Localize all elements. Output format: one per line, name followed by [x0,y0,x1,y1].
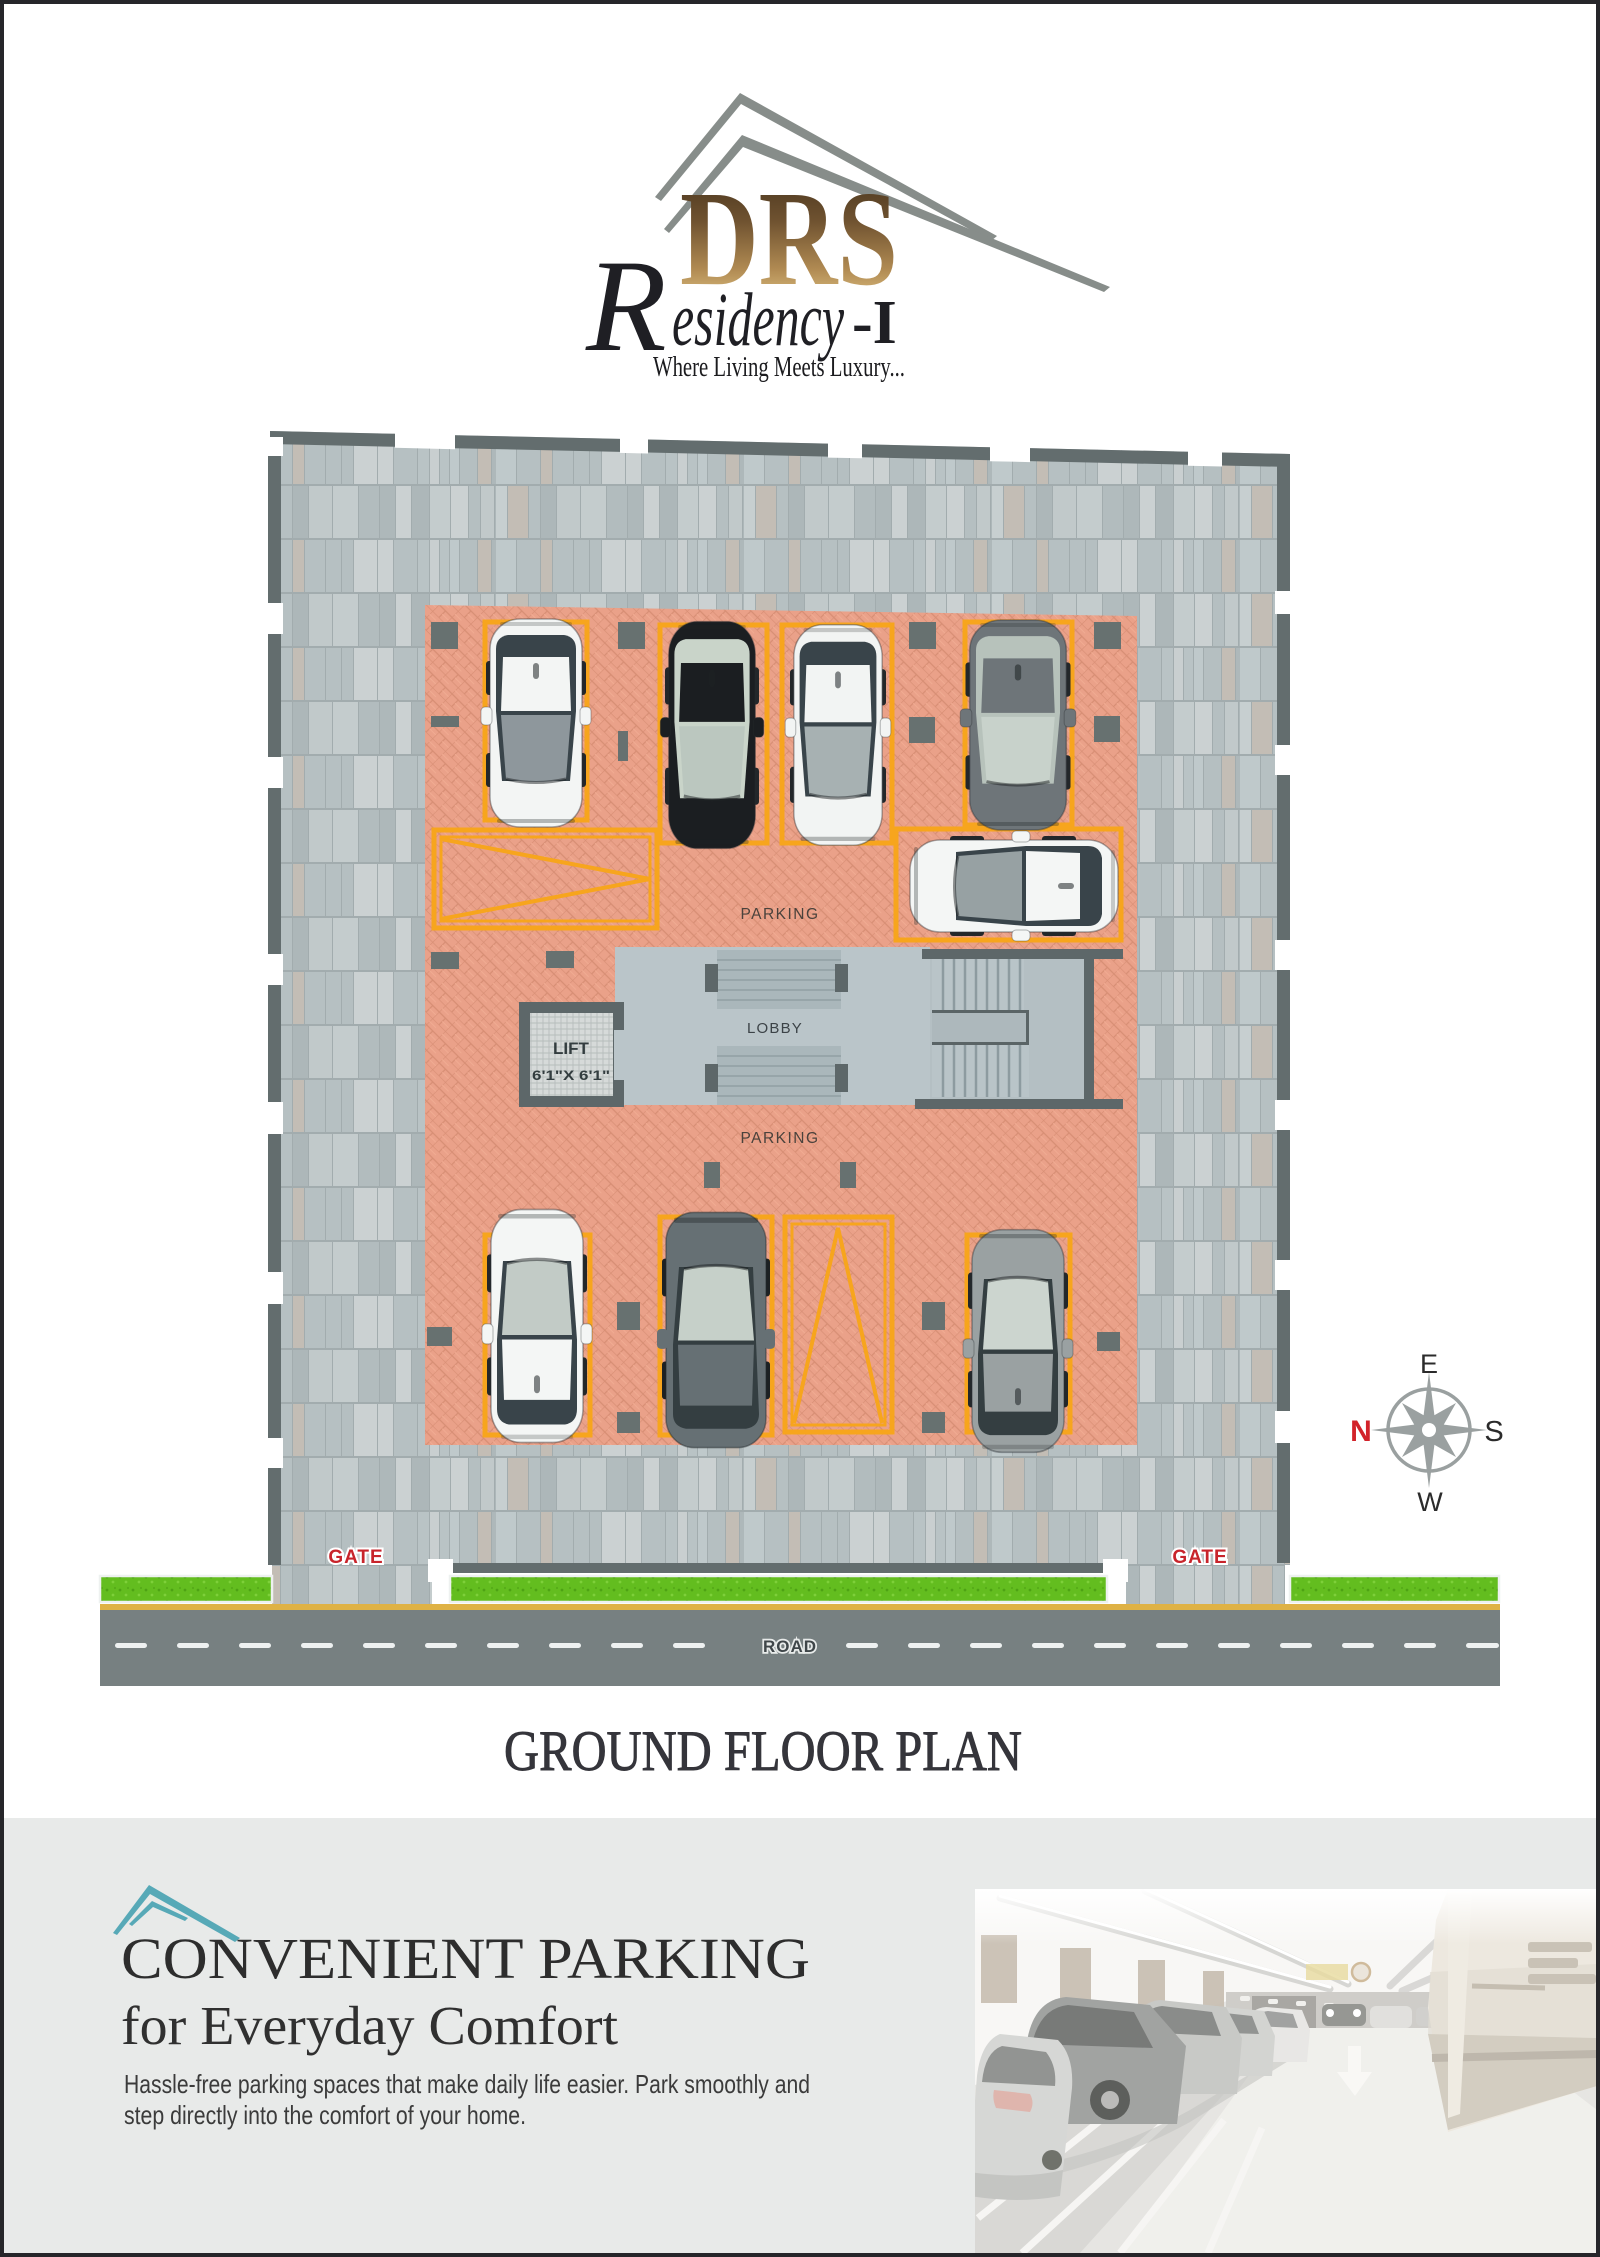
svg-text:ROAD: ROAD [763,1637,817,1656]
svg-text:GATE: GATE [328,1547,383,1568]
svg-text:6'1"X 6'1": 6'1"X 6'1" [532,1067,610,1083]
svg-text:E: E [1420,1349,1438,1379]
svg-text:esidency: esidency [672,278,844,362]
svg-text:LOBBY: LOBBY [747,1020,803,1037]
svg-text:Where Living Meets Luxury...: Where Living Meets Luxury... [653,352,905,383]
svg-text:for Everyday Comfort: for Everyday Comfort [121,1995,618,2056]
svg-text:CONVENIENT PARKING: CONVENIENT PARKING [121,1926,810,1991]
svg-text:-I: -I [852,289,897,357]
svg-text:GATE: GATE [1172,1547,1227,1568]
svg-text:W: W [1417,1487,1443,1517]
svg-text:step directly into the comfort: step directly into the comfort of your h… [124,2100,526,2130]
svg-text:LIFT: LIFT [553,1039,589,1058]
svg-text:PARKING: PARKING [740,906,819,923]
svg-text:GROUND FLOOR PLAN: GROUND FLOOR PLAN [504,1720,1022,1783]
svg-text:N: N [1350,1415,1372,1448]
svg-text:Hassle-free parking spaces tha: Hassle-free parking spaces that make dai… [124,2069,810,2099]
svg-text:S: S [1484,1416,1503,1448]
svg-text:PARKING: PARKING [740,1130,819,1147]
